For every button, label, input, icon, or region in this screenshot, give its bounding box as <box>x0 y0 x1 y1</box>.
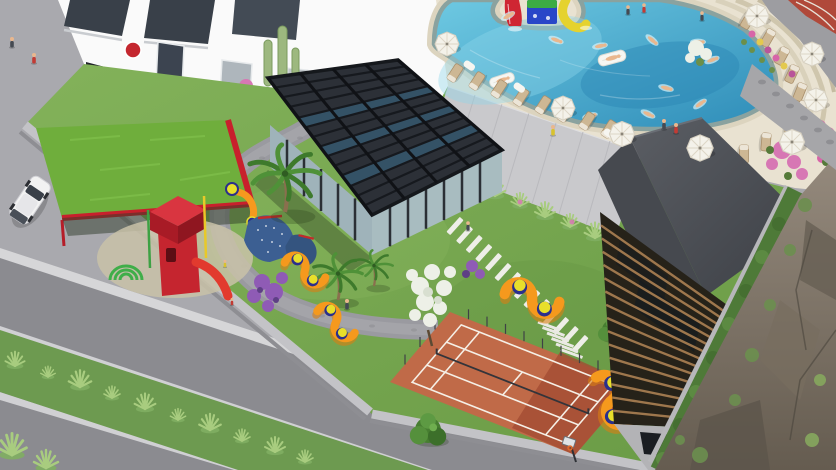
shop-sign <box>125 42 141 58</box>
site-render <box>0 0 836 470</box>
slide-tower-roof <box>527 0 557 8</box>
facade-glazing <box>232 0 300 40</box>
aerial-render-canvas <box>0 0 836 470</box>
facade-glazing <box>144 0 215 44</box>
canopy-post <box>62 220 64 246</box>
grass-roof-canopy <box>36 120 252 218</box>
